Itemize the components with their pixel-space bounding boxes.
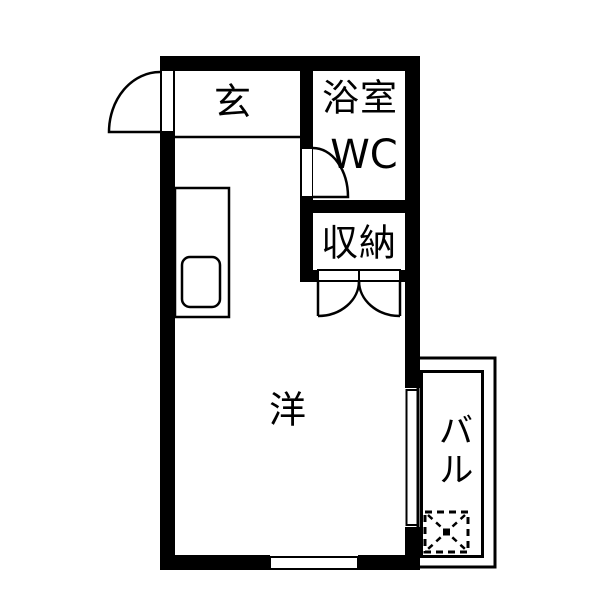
room-label-genkan: 玄 (214, 84, 252, 121)
main-room-window (270, 557, 358, 569)
entrance-door (109, 70, 174, 132)
wall-top (160, 56, 420, 71)
closet-double-door (318, 270, 400, 316)
wall-bath-bottom (300, 200, 420, 213)
closet-door-leaf-left (318, 270, 359, 281)
wall-right-upper (405, 56, 420, 388)
closet-door-arc-right (359, 281, 400, 316)
kitchen-counter (175, 188, 229, 317)
floor-plan-drawing (0, 0, 600, 600)
room-label-balcony: バル (435, 412, 470, 490)
room-label-bathroom: 浴室 (322, 80, 398, 117)
wall-bottom-left (160, 555, 270, 570)
wall-closet-bottom-left (300, 270, 318, 282)
closet-door-arc-left (318, 281, 359, 316)
room-label-wc: WC (330, 135, 397, 175)
wall-bath-left-upper (300, 71, 313, 148)
wall-left (160, 132, 175, 570)
wall-right-lower (405, 527, 420, 570)
bathroom-door-leaf (301, 148, 313, 197)
washer-center-dot (443, 529, 450, 536)
entrance-door-leaf (161, 70, 174, 132)
room-label-western-room: 洋 (269, 392, 307, 429)
floor-plan: 玄 浴室 WC 収納 洋 バル (0, 0, 600, 600)
entrance-door-arc (109, 72, 160, 132)
closet-door-leaf-right (359, 270, 400, 281)
balcony-window (407, 390, 418, 525)
wall-closet-bottom-right (400, 270, 420, 282)
kitchen-sink (182, 257, 220, 307)
room-label-closet: 収納 (321, 225, 397, 262)
